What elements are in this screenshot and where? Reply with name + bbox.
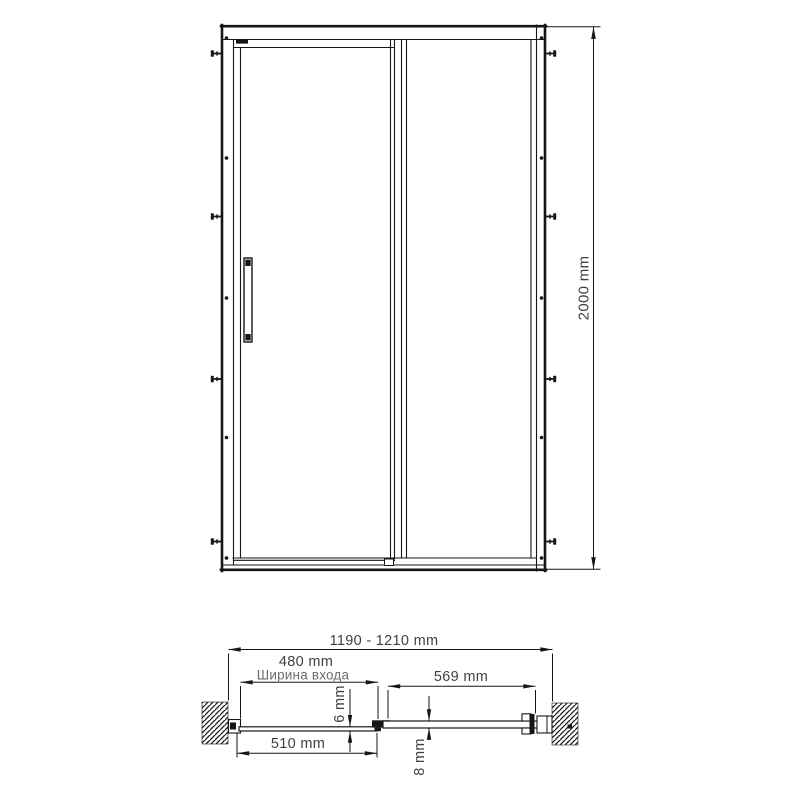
arrow-right-icon [366,680,378,684]
door-handle [244,258,252,342]
arrow-left-icon [388,684,400,688]
height-dim-label: 2000 mm [576,256,593,321]
dim-door-glass-thickness [348,689,352,752]
arrow-down-icon [591,557,596,569]
dim-entrance-width [241,680,379,719]
plan-sliding-door-glass [239,727,377,731]
arrow-down-icon [348,715,352,727]
drawing-linework: circle{r:1.8px;} [0,0,800,800]
door-glass-thickness-label: 6 mm [332,685,348,722]
dim-fixed-panel-width [388,684,536,718]
wall-section-right [552,703,578,745]
arrow-up-icon [591,27,596,39]
mounting-dots: circle{r:1.8px;} [225,36,544,560]
front-view: circle{r:1.8px;} [211,25,556,571]
plan-fixed-panel-glass [383,721,538,728]
arrow-up-icon [348,731,352,743]
screw-icon [211,538,222,544]
shower-door-technical-drawing: circle{r:1.8px;} [0,0,800,800]
screw-icon [545,50,556,56]
mounting-screws-left [211,50,222,544]
sliding-door-panel [234,40,395,566]
screw-icon [545,213,556,219]
wall-anchor [568,725,573,729]
screw-icon [211,50,222,56]
head-rail [221,26,546,39]
overall-width-label: 1190 - 1210 mm [330,633,439,649]
fixed-glass-thickness-label: 8 mm [412,738,428,775]
arrow-left-icon [237,751,249,755]
screw-icon [211,213,222,219]
dim-fixed-glass-thickness [427,696,431,740]
wall-section-left [202,702,228,744]
arrow-left-icon [229,647,241,651]
arrow-right-icon [523,684,535,688]
arrow-left-icon [241,680,253,684]
fixed-panel [402,40,532,559]
door-width-label: 510 mm [271,736,325,752]
screw-icon [545,376,556,382]
arrow-right-icon [365,751,377,755]
top-roller-bracket [236,40,248,44]
arrow-right-icon [540,647,552,651]
plan-view [202,702,578,745]
fixed-panel-width-label: 569 mm [434,669,488,685]
mounting-screws-right [545,50,556,544]
screw-icon [545,538,556,544]
entrance-width-caption: Ширина входа [257,667,349,682]
arrow-down-icon [427,709,431,721]
screw-icon [211,376,222,382]
bottom-roller-block [385,559,394,566]
